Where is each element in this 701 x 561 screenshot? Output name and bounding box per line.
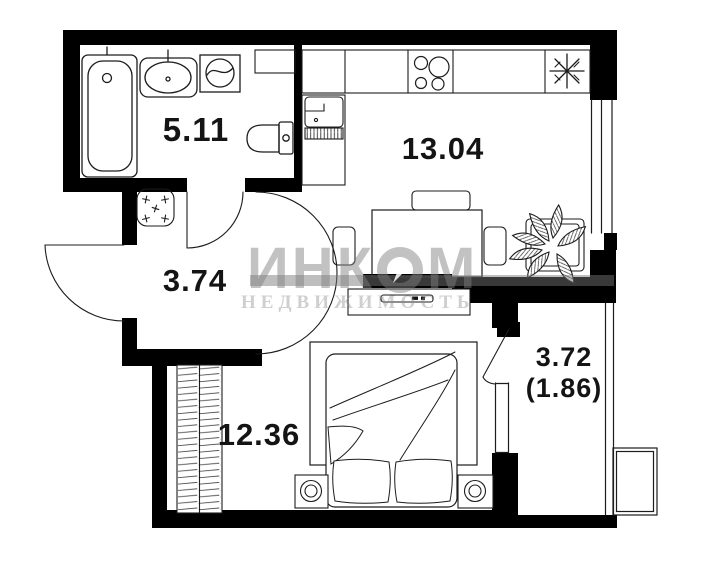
floor-plan (0, 0, 701, 561)
floor-heating-icon (137, 189, 174, 226)
tv-console-icon (348, 289, 470, 315)
floor-plan-image: 5.11 13.04 3.74 12.36 3.72 (1.86) ИНК М … (0, 0, 701, 561)
chair-icon (333, 191, 506, 265)
kitchen-area-label: 13.04 (391, 133, 495, 166)
bathroom-door-arc (187, 192, 243, 248)
ac-unit-box (613, 448, 657, 515)
snowflake-icon (550, 54, 584, 88)
table-icon (372, 210, 482, 277)
kitchen-sink-icon (302, 95, 345, 185)
balcony-glazing (606, 303, 614, 515)
stove-icon (415, 57, 450, 91)
bed-icon (310, 342, 477, 507)
entrance-door-arc (45, 245, 124, 321)
bathroom-area-label: 5.11 (154, 113, 238, 148)
plant-icon (509, 204, 589, 286)
balcony-door-arc (483, 329, 509, 384)
toilet-icon (247, 122, 293, 154)
sink-icon (140, 50, 197, 97)
kitchen-window (592, 100, 613, 233)
bathroom-cabinet (255, 50, 295, 73)
washing-machine-icon (200, 55, 240, 92)
bedroom-balcony-window (496, 383, 509, 453)
kitchen-counter-top (302, 50, 590, 93)
bedroom-area-label: 12.36 (207, 419, 311, 452)
bathtub-icon (82, 47, 137, 177)
hallway-door-arc (256, 192, 337, 354)
balcony-reduced-area-label: (1.86) (510, 374, 618, 402)
hallway-area-label: 3.74 (153, 265, 237, 298)
balcony-area-label: 3.72 (517, 343, 611, 371)
